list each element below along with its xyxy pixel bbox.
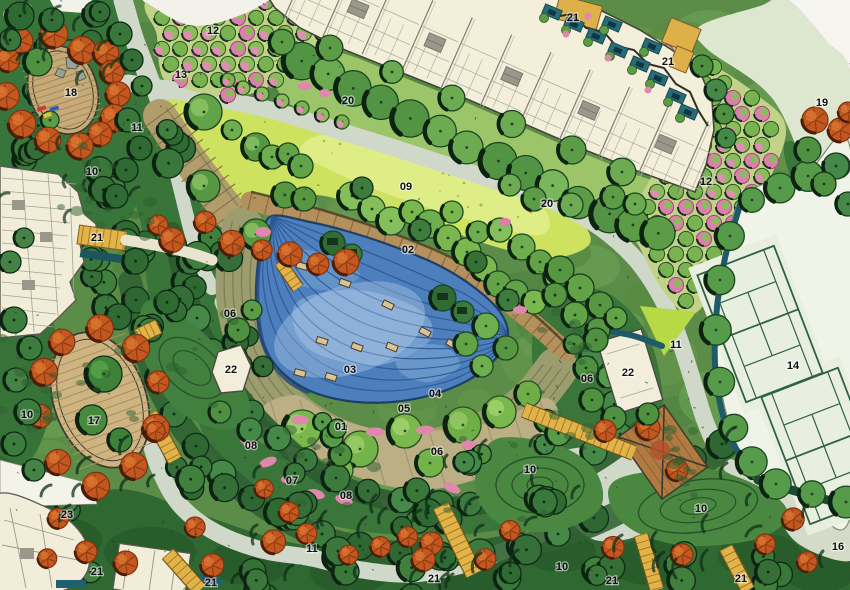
svg-text:21: 21 <box>662 56 674 68</box>
svg-text:06: 06 <box>224 308 236 320</box>
svg-text:21: 21 <box>91 232 103 244</box>
svg-text:16: 16 <box>832 541 844 553</box>
svg-text:21: 21 <box>567 12 579 24</box>
svg-text:05: 05 <box>398 403 410 415</box>
svg-text:22: 22 <box>622 367 634 379</box>
svg-text:21: 21 <box>428 573 440 585</box>
svg-text:11: 11 <box>131 122 143 134</box>
svg-text:13: 13 <box>175 69 187 81</box>
svg-text:10: 10 <box>524 464 536 476</box>
svg-text:21: 21 <box>205 577 217 589</box>
svg-text:21: 21 <box>735 573 747 585</box>
svg-text:08: 08 <box>245 440 257 452</box>
svg-text:04: 04 <box>429 388 442 400</box>
svg-text:12: 12 <box>700 176 712 188</box>
svg-text:09: 09 <box>400 181 412 193</box>
svg-text:03: 03 <box>344 364 356 376</box>
svg-text:07: 07 <box>286 475 298 487</box>
svg-text:10: 10 <box>556 561 568 573</box>
svg-text:19: 19 <box>816 97 828 109</box>
svg-text:22: 22 <box>225 364 237 376</box>
svg-text:12: 12 <box>207 25 219 37</box>
svg-text:21: 21 <box>91 566 103 578</box>
svg-text:14: 14 <box>787 360 800 372</box>
svg-text:21: 21 <box>606 575 618 587</box>
svg-text:10: 10 <box>21 409 33 421</box>
svg-text:01: 01 <box>335 421 347 433</box>
svg-text:11: 11 <box>670 339 682 351</box>
svg-text:23: 23 <box>61 509 73 521</box>
svg-text:17: 17 <box>88 415 100 427</box>
svg-text:20: 20 <box>541 198 553 210</box>
svg-text:08: 08 <box>340 490 352 502</box>
svg-text:11: 11 <box>306 543 318 555</box>
svg-text:06: 06 <box>431 446 443 458</box>
svg-text:06: 06 <box>581 373 593 385</box>
svg-text:18: 18 <box>65 87 77 99</box>
svg-text:02: 02 <box>402 244 414 256</box>
svg-text:20: 20 <box>342 95 354 107</box>
svg-text:10: 10 <box>695 503 707 515</box>
svg-text:10: 10 <box>86 166 98 178</box>
